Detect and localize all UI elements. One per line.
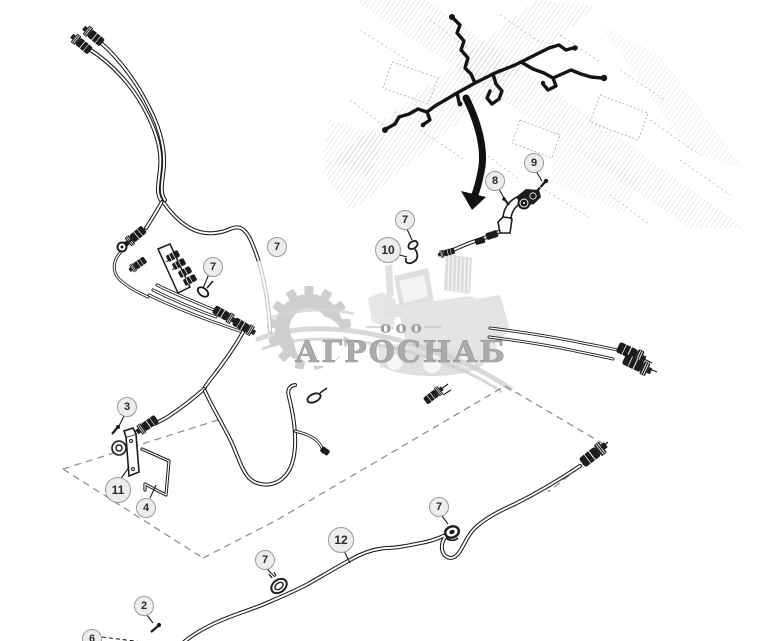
bolt-icon: [502, 197, 509, 205]
round-connector-icon: [422, 384, 445, 405]
cable-tie-icon: [306, 388, 327, 405]
round-connector-icon: [231, 316, 257, 338]
connector-block: [158, 244, 197, 293]
round-connector-icon: [127, 256, 148, 274]
diagram-stage: ооо АГРОСНАБ: [0, 0, 781, 641]
install-plane-dashed: [63, 386, 607, 558]
harness-connectors: [68, 24, 657, 469]
ring-connector-icon: [118, 240, 132, 252]
bracket-connector-assembly: [498, 189, 541, 233]
parts-diagram-canvas: ооо АГРОСНАБ: [0, 0, 781, 641]
screw-icon: [151, 623, 161, 632]
mounting-bracket: [112, 428, 139, 476]
watermark-company-text: АГРОСНАБ: [295, 335, 507, 370]
screw-icon: [112, 425, 120, 434]
clip-icon: [406, 239, 419, 263]
small-parts: [112, 179, 548, 632]
screw-icon: [537, 179, 548, 191]
u-bolt-rod: [142, 449, 169, 495]
